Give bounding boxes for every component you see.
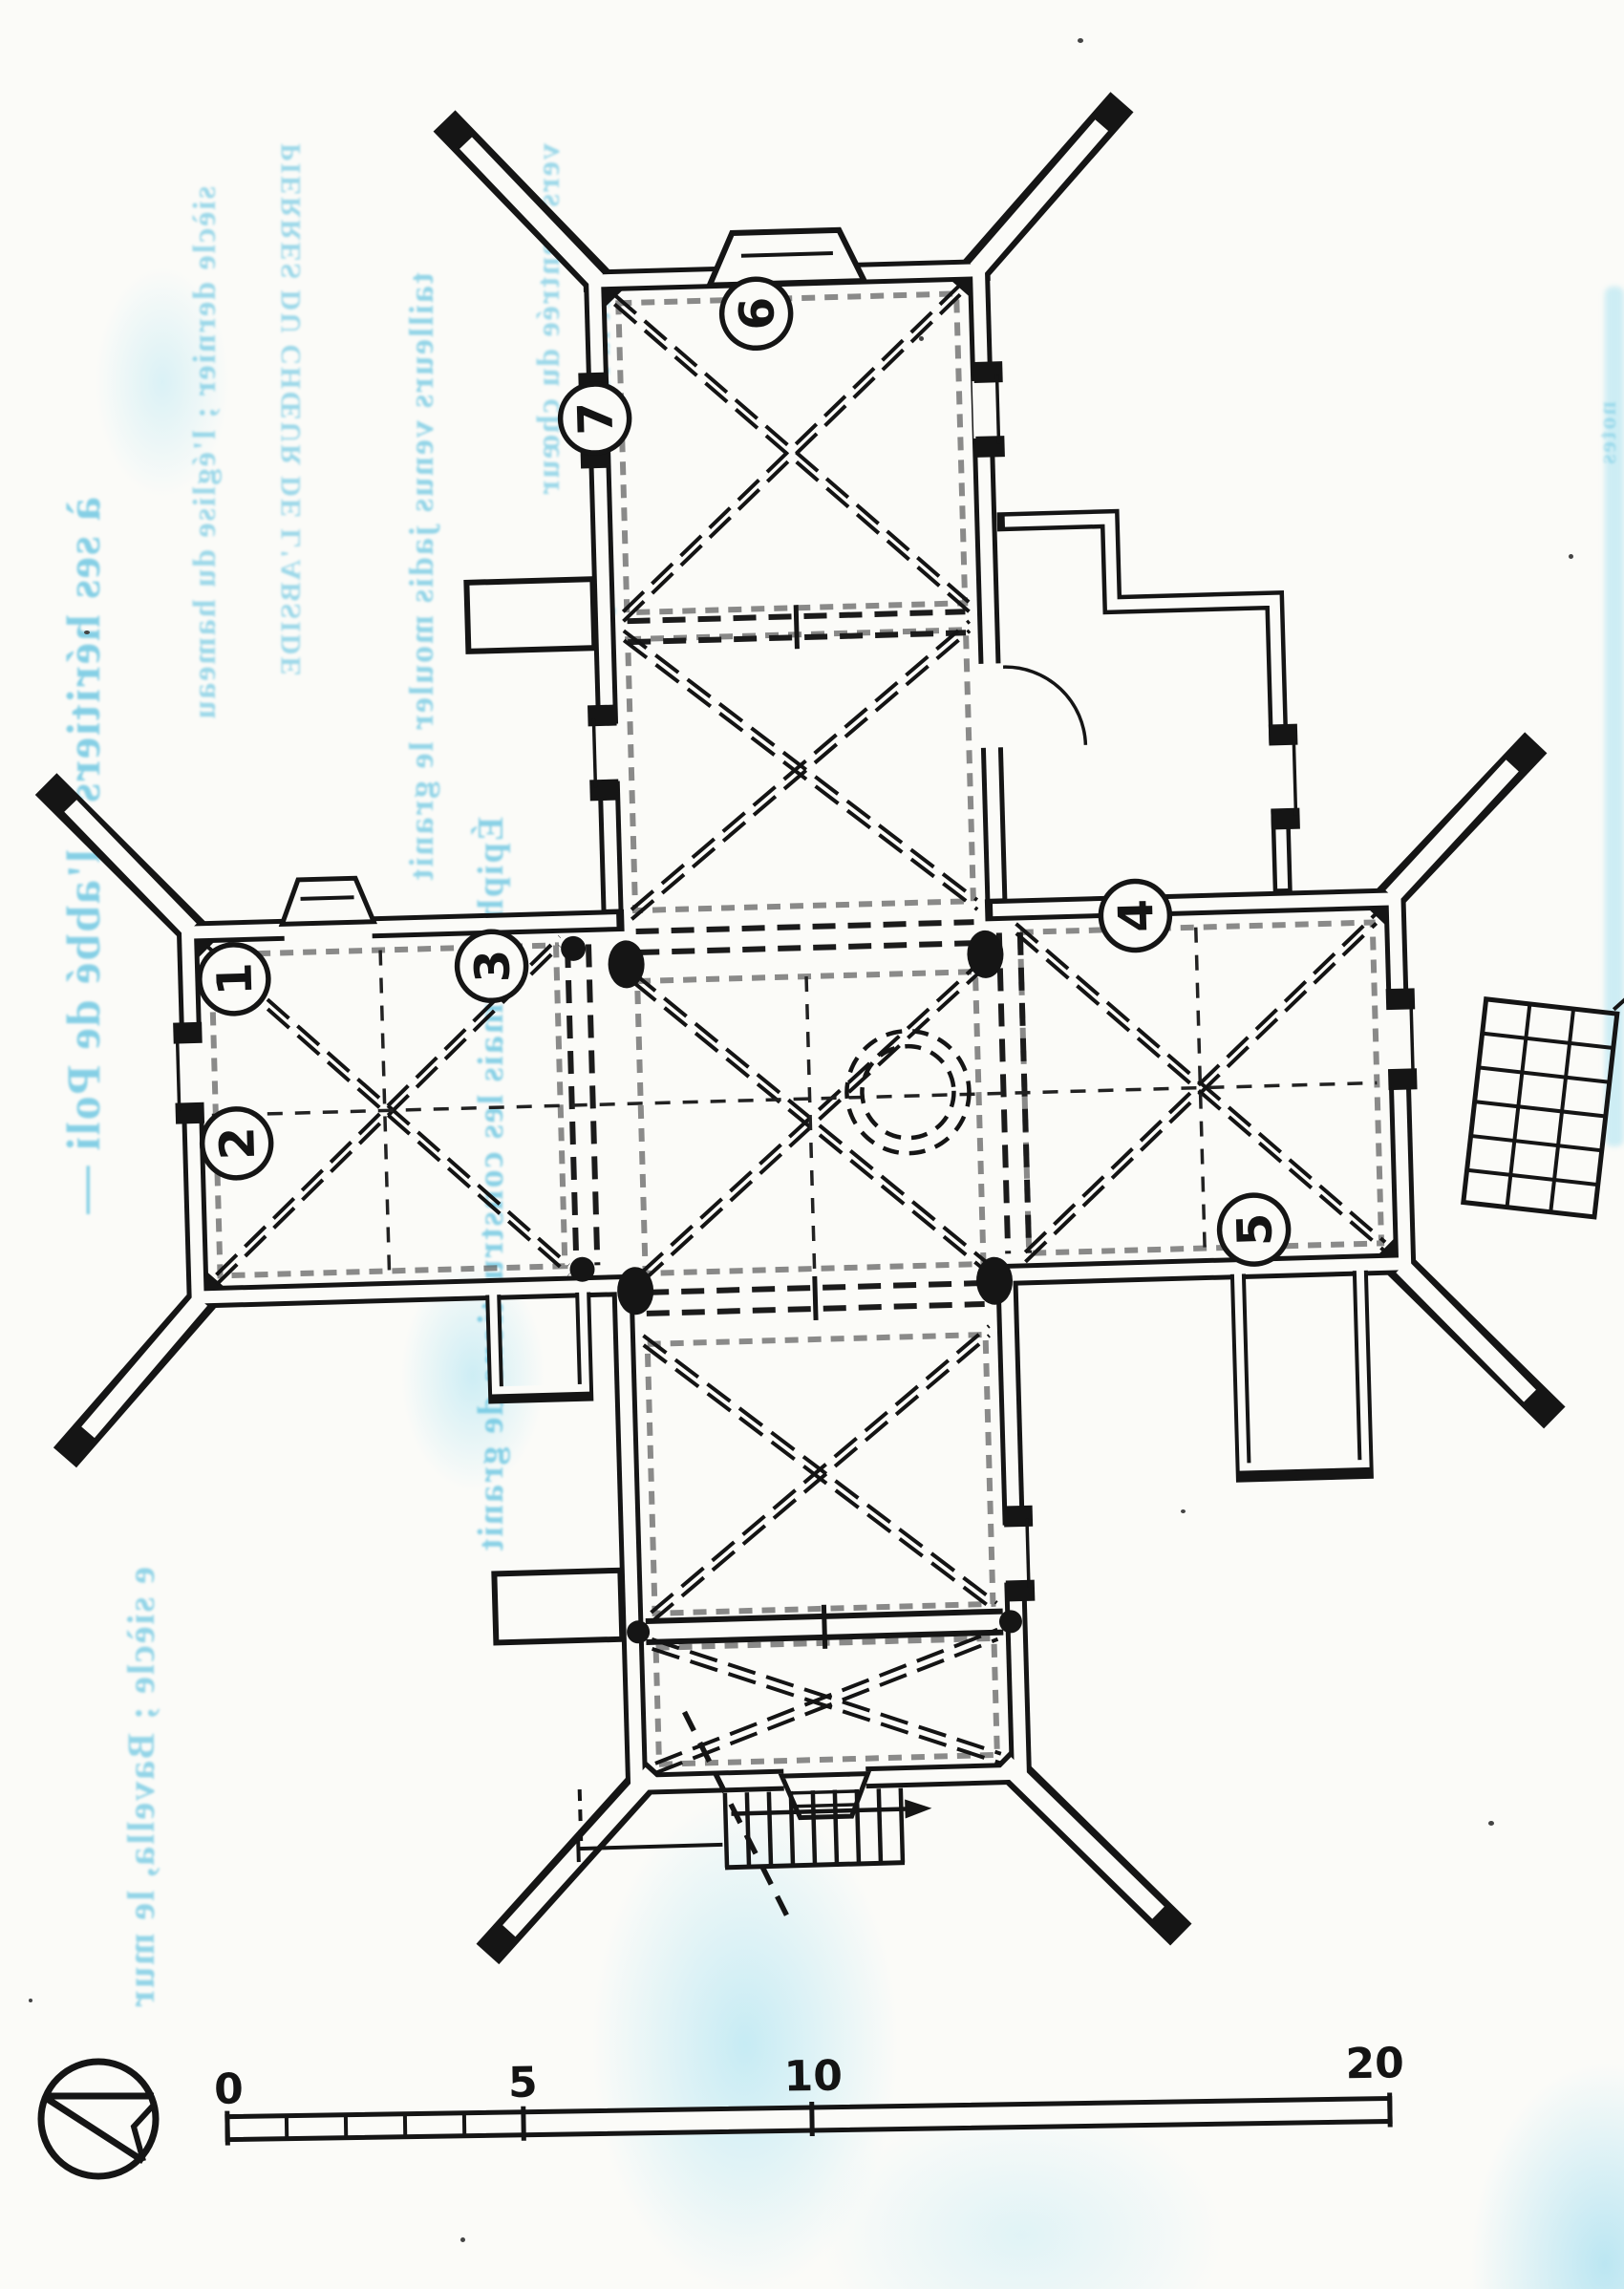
room-labels: 1 2 3 4 5 <box>179 266 1290 1294</box>
scan-speck <box>84 631 90 634</box>
room-label-4: 4 <box>1100 880 1170 951</box>
room-label-2: 2 <box>202 1108 272 1179</box>
scale-label-0: 0 <box>214 2064 244 2113</box>
room-label-5-text: 5 <box>1227 1212 1283 1247</box>
scan-speck <box>1181 1509 1186 1513</box>
buttress-inner <box>53 115 1545 1942</box>
altar-niche <box>708 229 864 286</box>
room-label-2-text: 2 <box>209 1126 266 1161</box>
room-label-3: 3 <box>457 931 527 1001</box>
room-label-1: 1 <box>199 944 269 1015</box>
room-label-7-text: 7 <box>567 401 624 436</box>
scale-label-20: 20 <box>1345 2039 1404 2088</box>
corner-buttresses <box>38 102 1557 1954</box>
scale-label-5: 5 <box>508 2059 538 2107</box>
sacristy-door <box>976 661 1085 748</box>
north-arrow-icon <box>41 2062 156 2176</box>
room-label-1-text: 1 <box>206 962 263 996</box>
sacristy-inner <box>1005 514 1283 896</box>
scanned-floor-plan-page: à ses héritiers : l'abbé de Poli — e siè… <box>0 0 1624 2289</box>
scan-speck <box>1569 554 1573 559</box>
scan-speck <box>460 2237 465 2242</box>
vault-rib-diagonals <box>189 274 1400 1786</box>
room-label-4-text: 4 <box>1108 898 1165 932</box>
room-label-6-text: 6 <box>729 296 785 331</box>
steps-arrowhead <box>905 1799 932 1819</box>
sacristy-walls <box>997 514 1283 900</box>
church-plan-drawing: 1 2 3 4 5 <box>0 0 1624 2289</box>
room-label-3-text: 3 <box>464 949 521 983</box>
scan-speck <box>29 1999 32 2002</box>
scan-speck <box>919 336 924 341</box>
room-label-5: 5 <box>1219 1194 1290 1265</box>
plan-body: 1 2 3 4 5 <box>38 99 1624 1954</box>
north-porch-door <box>281 878 374 942</box>
scale-bar: 0 5 10 20 <box>214 2039 1405 2146</box>
steps-direction-arrow <box>731 1808 920 1814</box>
exterior-stair <box>1464 978 1624 1218</box>
scan-speck <box>1078 38 1083 43</box>
walls-inner <box>165 253 1424 1802</box>
scan-speck <box>1488 1821 1494 1826</box>
scale-label-10: 10 <box>783 2051 843 2101</box>
walls-outline <box>159 247 1429 1807</box>
room-label-7: 7 <box>560 383 630 454</box>
wall-face-hatching <box>193 283 1395 1776</box>
room-label-6: 6 <box>721 278 792 349</box>
crossing-lantern-circle <box>845 1029 972 1155</box>
